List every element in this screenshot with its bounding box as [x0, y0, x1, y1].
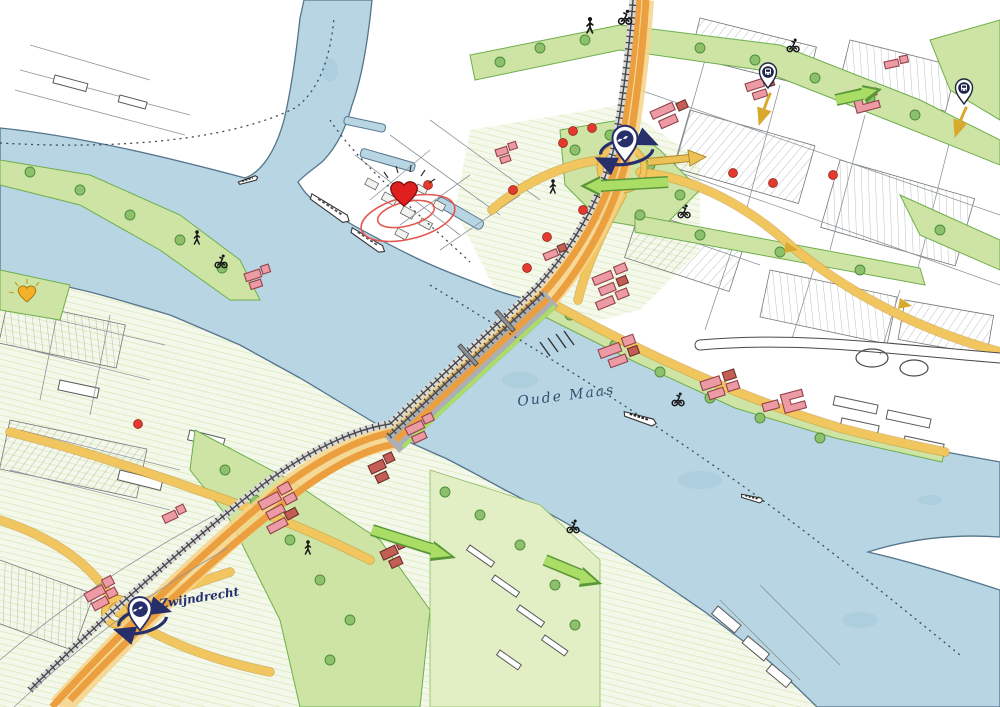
poi-dot	[509, 186, 518, 195]
poi-dot	[769, 179, 778, 188]
poi-dot	[829, 171, 838, 180]
poi-dot	[729, 169, 738, 178]
poi-dot	[559, 139, 568, 148]
poi-dot	[569, 127, 578, 136]
illustrated-map: Oude Maas Zwijndrecht	[0, 0, 1000, 707]
poi-dot	[579, 206, 588, 215]
train-icon	[961, 84, 967, 91]
map-canvas: Oude Maas Zwijndrecht	[0, 0, 1000, 707]
poi-dot	[588, 124, 597, 133]
train-icon	[765, 68, 771, 75]
poi-dot	[134, 420, 143, 429]
interchange-loop-2	[900, 360, 928, 376]
poi-dot	[543, 233, 552, 242]
inner-harbor-1	[343, 116, 386, 133]
poi-dot	[523, 264, 532, 273]
